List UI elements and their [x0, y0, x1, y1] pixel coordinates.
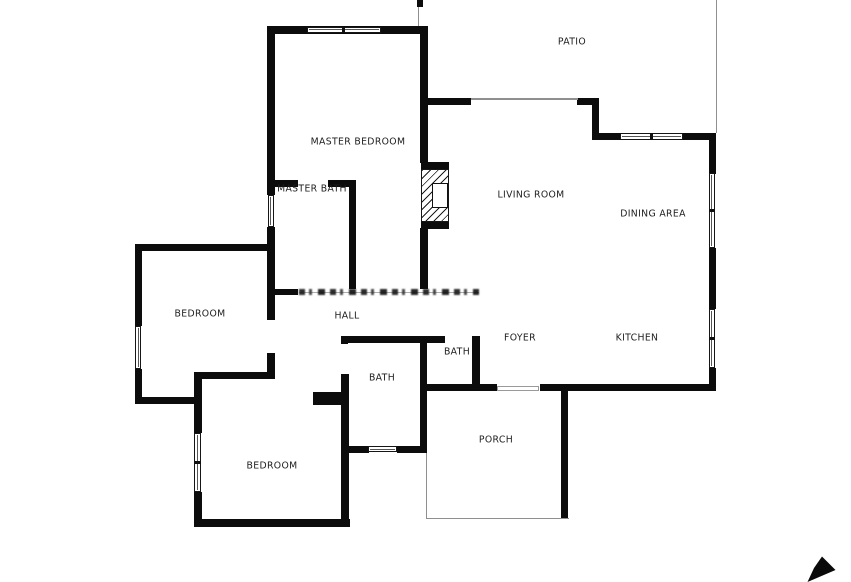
room-label-master-bedroom: MASTER BEDROOM — [311, 137, 406, 148]
boundary-line — [716, 0, 717, 133]
room-label-hall: HALL — [334, 311, 359, 322]
window-glass-line — [370, 449, 395, 450]
fireplace-bottom-cap — [421, 222, 449, 229]
wall-segment — [349, 446, 369, 453]
fireplace-top-cap — [421, 162, 449, 169]
wall-segment — [194, 372, 276, 380]
window-glass-line — [138, 328, 139, 367]
window — [135, 326, 141, 369]
window — [368, 446, 397, 452]
wall-segment — [420, 336, 427, 453]
watermark-dashes — [299, 289, 479, 295]
fireplace — [421, 162, 449, 229]
wall-segment — [423, 384, 497, 391]
room-label-bath-small: BATH — [444, 347, 470, 358]
room-label-porch: PORCH — [479, 435, 513, 446]
window — [709, 309, 715, 368]
wall-segment — [135, 397, 200, 405]
window — [194, 433, 201, 492]
floor-plan: PATIOMASTER BEDROOMMASTER BATHLIVING ROO… — [0, 0, 851, 582]
window-divider — [709, 209, 716, 212]
boundary-line — [426, 518, 569, 519]
wall-segment — [472, 336, 480, 386]
wall-segment — [341, 374, 349, 527]
window — [709, 173, 716, 248]
wall-segment — [397, 446, 427, 453]
window-glass-line — [270, 197, 271, 225]
fireplace-hatch — [421, 169, 449, 222]
room-label-living-room: LIVING ROOM — [497, 190, 564, 201]
window-divider — [194, 461, 201, 464]
wall-segment — [135, 244, 142, 327]
wall-segment — [420, 228, 428, 289]
wall-segment — [561, 391, 569, 519]
window-divider — [650, 133, 653, 140]
window — [620, 133, 683, 140]
wall-segment — [313, 392, 341, 405]
wall-segment — [267, 26, 275, 195]
wall-segment — [427, 98, 471, 105]
room-label-foyer: FOYER — [504, 333, 536, 344]
patio-edge-tick — [417, 0, 423, 7]
window-divider — [342, 27, 345, 34]
wall-segment — [709, 248, 716, 309]
fireplace-firebox — [432, 183, 448, 208]
room-label-master-bath: MASTER BATH — [277, 184, 347, 195]
wall-segment — [341, 336, 348, 344]
room-label-bath: BATH — [369, 373, 395, 384]
room-label-kitchen: KITCHEN — [616, 333, 659, 344]
window — [268, 195, 275, 227]
room-label-dining-area: DINING AREA — [620, 209, 686, 220]
boundary-line — [426, 453, 427, 519]
boundary-line — [471, 98, 578, 99]
wall-segment — [709, 139, 716, 174]
wall-segment — [267, 227, 275, 320]
wall-segment — [275, 289, 298, 296]
wall-segment — [194, 519, 351, 527]
room-label-bedroom-left: BEDROOM — [175, 309, 226, 320]
window-divider — [709, 337, 715, 340]
window — [307, 27, 381, 34]
wall-segment — [343, 336, 445, 343]
wall-segment — [349, 186, 356, 289]
wall-segment — [592, 133, 622, 141]
room-label-bedroom-lower: BEDROOM — [247, 461, 298, 472]
wall-segment — [420, 26, 428, 163]
wall-segment — [194, 372, 202, 434]
blurred-watermark — [299, 288, 479, 297]
wall-segment — [135, 244, 275, 252]
front-door — [497, 386, 539, 392]
room-label-patio: PATIO — [558, 37, 586, 48]
